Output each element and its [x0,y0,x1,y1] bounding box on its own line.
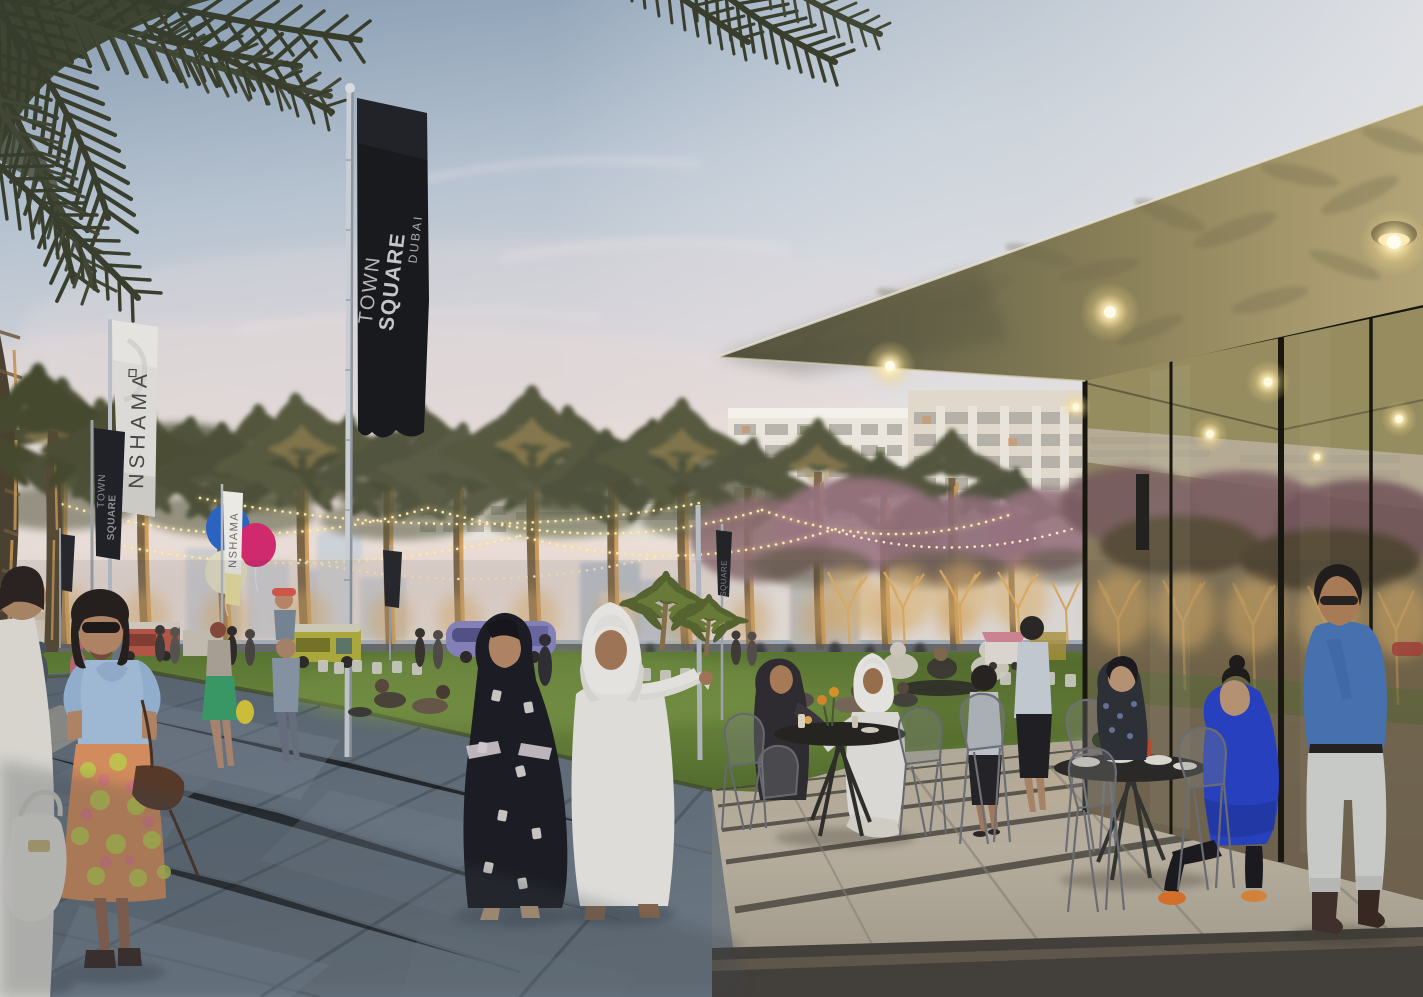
svg-text:NSHAMA: NSHAMA [227,512,241,568]
svg-text:SQUARE: SQUARE [106,494,119,540]
svg-text:NSHAMA: NSHAMA [125,369,152,490]
